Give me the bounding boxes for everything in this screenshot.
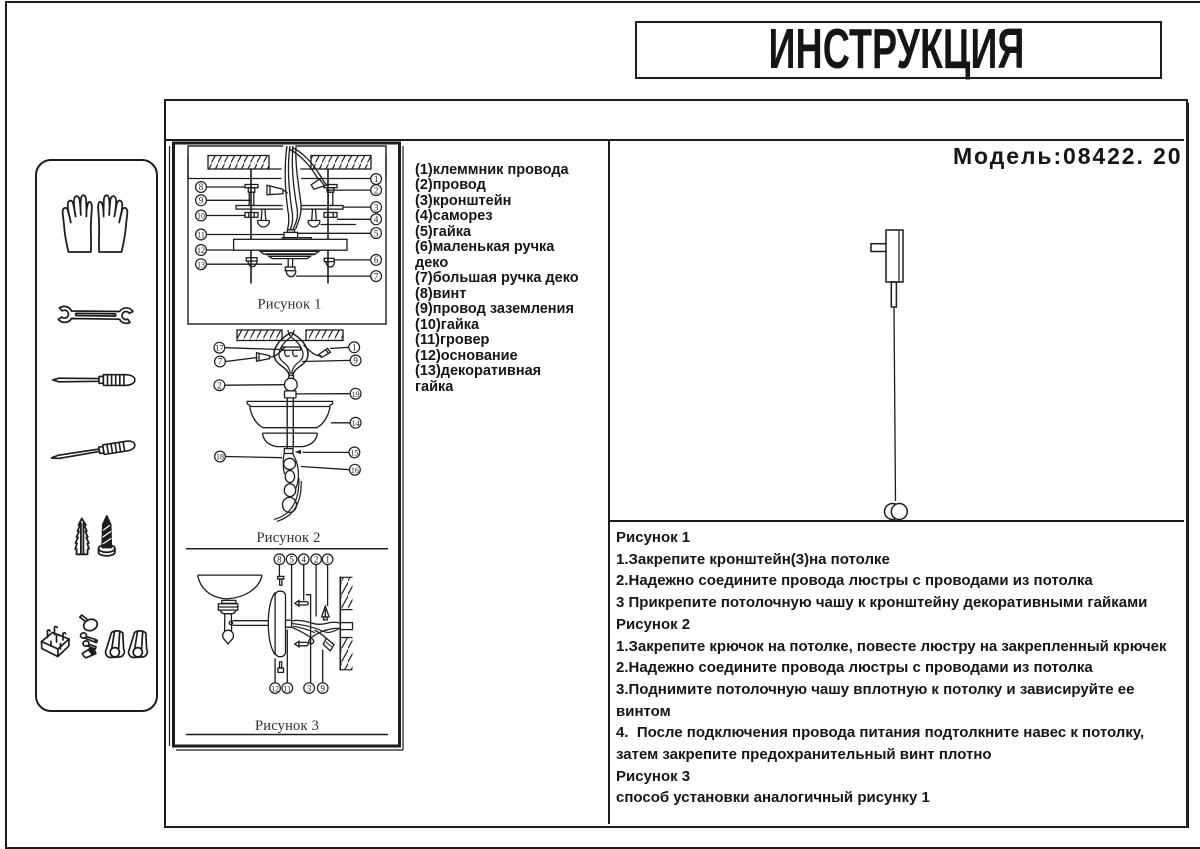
svg-text:12: 12: [197, 246, 205, 255]
svg-text:7: 7: [218, 357, 223, 367]
svg-text:9: 9: [353, 356, 358, 366]
svg-text:9: 9: [199, 196, 204, 206]
svg-text:19: 19: [352, 390, 360, 399]
svg-text:17: 17: [215, 344, 223, 353]
svg-text:4: 4: [374, 215, 379, 225]
svg-text:12: 12: [271, 684, 279, 693]
svg-text:Рисунок 3: Рисунок 3: [255, 718, 319, 734]
svg-text:2: 2: [314, 555, 319, 565]
svg-text:5: 5: [289, 555, 294, 565]
svg-text:11: 11: [283, 684, 291, 693]
svg-text:16: 16: [351, 466, 359, 475]
svg-text:2: 2: [217, 380, 222, 390]
svg-text:4: 4: [301, 555, 306, 565]
svg-text:3: 3: [374, 202, 379, 212]
svg-text:Рисунок 1: Рисунок 1: [257, 297, 321, 313]
svg-text:15: 15: [350, 449, 358, 458]
svg-text:2: 2: [374, 185, 379, 195]
svg-text:8: 8: [199, 182, 204, 192]
svg-text:18: 18: [216, 453, 224, 462]
svg-text:1: 1: [352, 343, 357, 353]
svg-text:6: 6: [374, 255, 379, 265]
svg-text:10: 10: [197, 212, 205, 221]
svg-text:8: 8: [277, 555, 282, 565]
svg-text:7: 7: [374, 271, 379, 281]
svg-text:14: 14: [352, 419, 360, 428]
svg-text:13: 13: [197, 260, 205, 269]
svg-text:3: 3: [307, 683, 312, 693]
svg-text:9: 9: [320, 683, 325, 693]
svg-text:11: 11: [197, 231, 205, 240]
svg-text:5: 5: [374, 228, 379, 238]
svg-text:1: 1: [325, 555, 330, 565]
svg-text:Рисунок 2: Рисунок 2: [256, 530, 320, 546]
svg-text:1: 1: [374, 174, 379, 184]
